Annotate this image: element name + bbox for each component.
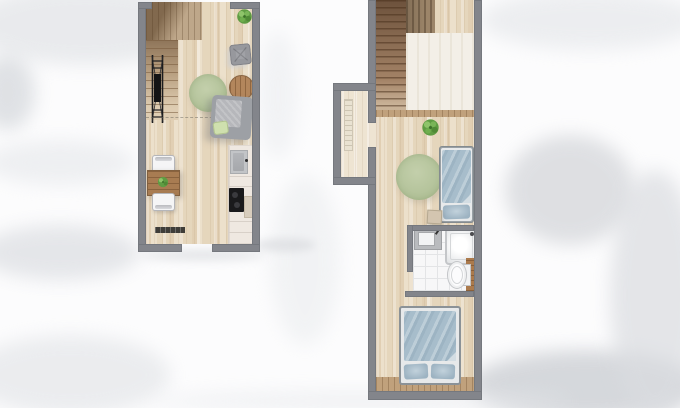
cooktop — [229, 188, 244, 212]
watercolor-wash — [0, 55, 35, 130]
toilet — [447, 261, 471, 288]
kitchen-sink — [230, 150, 248, 174]
wall-right-upper — [474, 0, 482, 400]
potted-plant-lower — [236, 8, 253, 25]
bathroom-wall-bottom — [405, 291, 474, 297]
bedside-stool — [427, 210, 443, 225]
duvet-fold — [462, 194, 471, 203]
double-bed-duvet — [404, 311, 456, 361]
landing-area — [406, 33, 474, 110]
area-rug-upper — [396, 154, 442, 200]
nook-wall-left — [333, 83, 341, 185]
armchair — [210, 95, 254, 141]
counter-seam — [228, 186, 252, 187]
stair-landing-lower — [146, 2, 202, 40]
watercolor-wash — [258, 30, 298, 160]
single-bed-pillow — [443, 205, 470, 220]
double-bed-pillow-right — [431, 364, 456, 380]
counter-seam — [228, 221, 252, 222]
chair-backrest — [155, 157, 172, 161]
floor-plan-canvas — [0, 0, 680, 408]
watercolor-wash — [150, 392, 570, 408]
duvet-fold — [447, 352, 456, 361]
bathroom-wall-top — [407, 225, 474, 231]
dining-chair-bottom — [152, 193, 175, 211]
wall-bottom-right — [212, 244, 260, 252]
plan-shadow — [255, 238, 315, 252]
sink-basin — [233, 153, 244, 171]
loft-ladder — [150, 54, 165, 124]
counter-seam — [228, 176, 252, 177]
single-bed-duvet — [442, 150, 471, 203]
counter-seam — [228, 232, 252, 233]
wall-bench — [155, 227, 185, 233]
faucet-icon — [245, 159, 248, 162]
wall-left-lower — [138, 2, 146, 252]
potted-plant-upper — [421, 118, 440, 137]
radiator — [344, 99, 353, 151]
watercolor-wash — [0, 225, 140, 280]
toilet-bowl — [447, 261, 467, 289]
watercolor-wash — [270, 175, 340, 345]
watercolor-wash — [0, 140, 135, 185]
wall-left-upper-top — [368, 0, 376, 123]
single-bed — [439, 146, 474, 223]
nook-wall-top — [333, 83, 376, 91]
table-plant — [157, 176, 169, 188]
double-bed — [399, 306, 461, 385]
wall-top-left-stub — [138, 2, 152, 9]
watercolor-wash — [505, 135, 635, 245]
bathroom-wall-left — [407, 225, 413, 272]
double-bed-pillow-left — [404, 363, 429, 379]
washbasin — [414, 228, 442, 250]
watercolor-wash — [0, 335, 170, 408]
wall-top-right — [230, 2, 260, 9]
floor-transition-strip — [376, 110, 474, 117]
watercolor-wash — [480, 0, 680, 50]
washbasin-bowl — [418, 232, 435, 246]
nook-wall-bottom — [333, 177, 376, 185]
stair-landing-upper — [406, 0, 435, 33]
wall-bottom-left — [138, 244, 182, 252]
armchair-pillow — [212, 120, 229, 135]
wall-right-lower — [252, 2, 260, 252]
pouf — [229, 43, 252, 66]
chair-backrest — [155, 205, 172, 209]
wall-bottom-upper — [368, 391, 482, 400]
staircase-upper — [376, 0, 406, 110]
